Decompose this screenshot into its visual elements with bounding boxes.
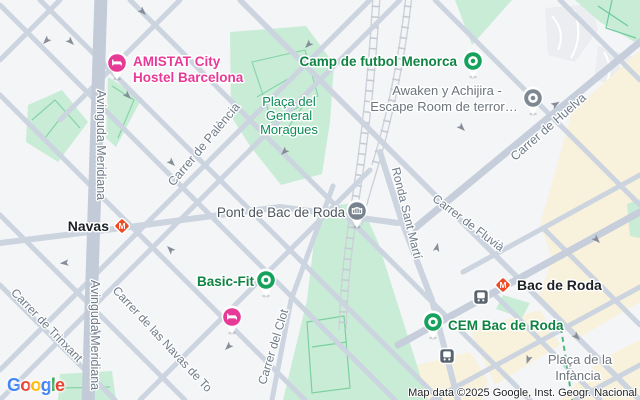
- poi-label-infancia-line2[interactable]: Infància: [555, 368, 601, 383]
- map-canvas[interactable]: Avinguda Meridiana Avinguda Meridiana Ca…: [0, 0, 640, 400]
- logo-letter: o: [20, 375, 30, 396]
- street-label-meridiana-bottom: Avinguda Meridiana: [88, 280, 102, 390]
- google-logo[interactable]: Google: [7, 375, 64, 396]
- map-attribution: Map data ©2025 Google, Inst. Geogr. Naci…: [408, 387, 637, 399]
- poi-label-infancia-line1[interactable]: Plaça de la: [548, 352, 613, 367]
- logo-letter: g: [41, 375, 51, 396]
- poi-label-moragues-line1[interactable]: Plaça del: [262, 94, 316, 109]
- poi-label-amistat-line1[interactable]: AMISTAT City: [133, 54, 221, 69]
- bus-stop-icon-1[interactable]: [474, 290, 489, 305]
- bus-stop-icon-2[interactable]: [440, 349, 455, 364]
- poi-label-cem-bac-de-roda[interactable]: CEM Bac de Roda: [448, 318, 564, 333]
- logo-letter: G: [7, 375, 20, 396]
- poi-label-moragues-line2[interactable]: General: [266, 108, 312, 123]
- transit-label-bac-de-roda[interactable]: Bac de Roda: [517, 277, 602, 293]
- poi-label-moragues-line3[interactable]: Moragues: [260, 122, 318, 137]
- poi-label-camp-futbol[interactable]: Camp de futbol Menorca: [299, 54, 457, 69]
- poi-label-awaken-line1[interactable]: Awaken y Achijira -: [392, 83, 502, 98]
- poi-label-basic-fit[interactable]: Basic-Fit: [197, 274, 255, 289]
- transit-label-navas[interactable]: Navas: [68, 218, 109, 234]
- street-label-meridiana-top: Avinguda Meridiana: [94, 90, 108, 200]
- poi-label-awaken-line2[interactable]: Escape Room de terror…: [370, 99, 517, 114]
- poi-label-amistat-line2[interactable]: Hostel Barcelona: [133, 70, 244, 85]
- logo-letter: e: [55, 375, 64, 396]
- metro-m-glyph: M: [118, 221, 125, 231]
- poi-label-pont-bac-de-roda[interactable]: Pont de Bac de Roda: [217, 205, 346, 220]
- logo-letter: o: [30, 375, 40, 396]
- metro-m-glyph: M: [499, 280, 506, 290]
